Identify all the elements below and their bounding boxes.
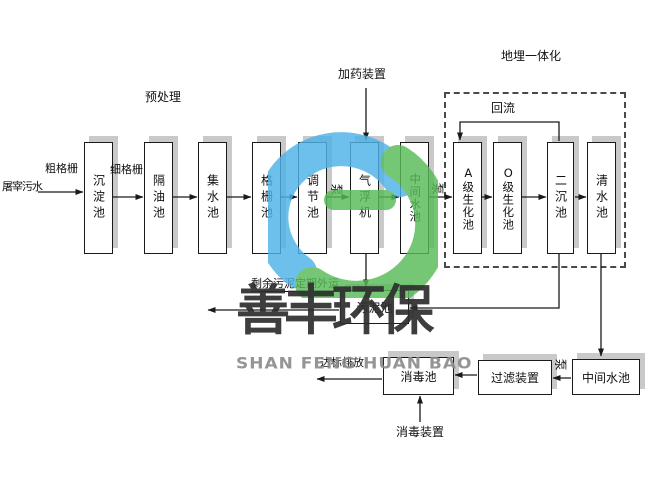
box-filter-device: 过滤装置 — [478, 360, 552, 395]
tank-screen: 格栅池 — [252, 142, 281, 254]
tank-intermediate-2: 中间水池 — [572, 359, 640, 395]
pump-label-3: 泵 — [553, 359, 566, 371]
pump-label-1: 泵 — [329, 184, 342, 196]
tank-sludge: 污泥池 — [340, 290, 409, 324]
tank-oil-separation: 隔油池 — [144, 142, 173, 254]
tank-disinfection: 消毒池 — [383, 357, 454, 395]
tank-a-biochemical: A级生化池 — [453, 142, 482, 254]
pretreatment-label: 预处理 — [145, 91, 181, 104]
tank-air-flotation: 气浮机 — [350, 142, 379, 254]
excess-sludge-label: 剩余污泥定期外运 — [251, 278, 339, 292]
tank-o-biochemical: O级生化池 — [493, 142, 522, 254]
dosing-device-label: 加药装置 — [338, 68, 386, 81]
pump-label-2: 泵 — [430, 183, 443, 195]
buried-system-label: 地埋一体化 — [501, 50, 561, 63]
tank-sedimentation: 沉淀池 — [84, 142, 113, 254]
tank-clear-water: 清水池 — [587, 142, 616, 254]
tank-water-collecting: 集水池 — [198, 142, 227, 254]
reflux-label: 回流 — [491, 102, 515, 115]
fine-screen-label: 细格栅 — [110, 164, 143, 176]
logo-blue-swirl — [271, 149, 400, 272]
tank-regulating: 调节池 — [298, 142, 327, 254]
influent-label: 屠宰污水 — [2, 181, 42, 193]
coarse-screen-label: 粗格栅 — [45, 163, 78, 175]
discharge-label: 达标排放 — [320, 357, 364, 369]
tank-secondary-sedimentation: 二沉池 — [547, 142, 574, 254]
disinfection-device-label: 消毒装置 — [396, 426, 444, 439]
tank-intermediate-1: 中间水池 — [400, 142, 429, 254]
process-flow-diagram: 屠宰污水 粗格栅 细格栅 预处理 加药装置 地埋一体化 回流 泵 泵 泵 剩余污… — [0, 0, 650, 500]
